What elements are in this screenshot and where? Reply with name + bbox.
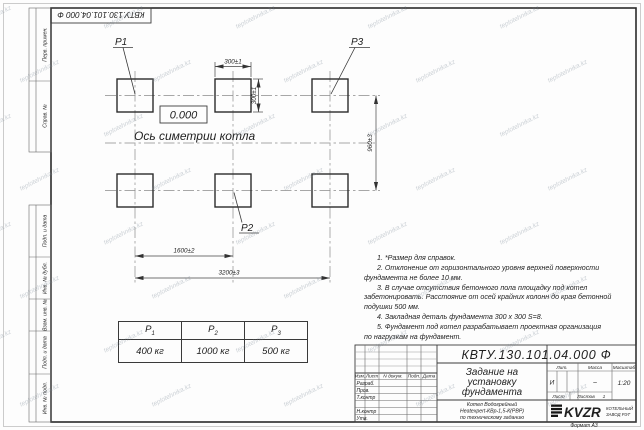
note-line: фундамента не более 10 мм. xyxy=(364,274,638,284)
note-line: 3. В случае отсутствия бетонного пола пл… xyxy=(364,284,638,294)
load-table-header-row: P1 P2 P3 xyxy=(119,322,308,340)
stamp-lit-mass-scale: Лит. Масса Масштаб И – 1:20 Лист Листов … xyxy=(547,363,636,400)
note-line: забетонировать. Расстояние от осей крайн… xyxy=(364,293,638,303)
stamp-header-col: Подп. xyxy=(408,374,421,380)
axis-of-symmetry-label: Ось симетрии котла xyxy=(134,129,255,143)
top-doc-number: КВТУ.130.101.04.000 Ф xyxy=(57,10,145,19)
drawing-canvas: Перв. примен. Справ. № Подп. и дата Инв.… xyxy=(0,0,644,430)
dimension-col-spacing: 1600±2 xyxy=(135,248,233,257)
stamp-product-line: Котел Водогрейный xyxy=(467,401,517,408)
dimension-total-span: 3200±3 xyxy=(135,270,330,279)
note-line: по нагрузкам на фундамент. xyxy=(364,333,638,343)
stamp-header-col: Лист xyxy=(365,374,378,380)
logo-caption-line: ЗАВОД РЭТ xyxy=(606,412,631,417)
dimension-text: 300±1 xyxy=(224,59,241,66)
note-line: 5. Фундамент под котел разрабатывает про… xyxy=(364,323,638,333)
load-table-value: 1000 кг xyxy=(182,340,245,363)
sheet-label: Лист xyxy=(551,394,564,400)
scale-value: 1:20 xyxy=(618,380,631,387)
stamp-title-line: фундамента xyxy=(462,387,523,398)
logo-text: KVZR xyxy=(564,405,601,420)
margin-label: Инв. № дубл. xyxy=(43,262,49,294)
stamp-product-line: по техническому заданию xyxy=(460,415,524,421)
note-line: подушки 500 мм. xyxy=(364,303,638,313)
margin-label: Справ. № xyxy=(43,104,49,128)
stamp-row-label: Т.контр xyxy=(357,395,376,401)
pad-label-text: P2 xyxy=(241,223,254,234)
foundation-plan: P1 P3 P2 0.000 Ось симетрии котла 300±1 xyxy=(105,37,380,283)
margin-label: Инв. № подл. xyxy=(43,382,49,414)
stamp-row-label: Пров. xyxy=(357,388,370,394)
pad-label-text: P3 xyxy=(351,37,364,48)
stamp-product-line: Heatexpert-КВр-1,5-К(РВР) xyxy=(460,409,524,415)
note-line: 4. Закладная деталь фундамента 300 х 300… xyxy=(364,313,638,323)
stamp-header-col: N докум. xyxy=(383,374,402,380)
pad-label-p3: P3 xyxy=(331,37,370,94)
pad-label-p2: P2 xyxy=(234,193,259,235)
stamp-row-label: Н.контр xyxy=(357,409,377,415)
dimension-text: 3200±3 xyxy=(219,270,240,277)
margin-label: Взам. инв. № xyxy=(43,299,49,331)
lit-value: И xyxy=(550,380,555,387)
note-line: 2. Отклонение от горизонтального уровня … xyxy=(364,264,638,274)
dimension-text: 300±1 xyxy=(251,87,258,104)
top-doc-number-box: КВТУ.130.101.04.000 Ф xyxy=(51,8,151,23)
dimension-text: 1600±2 xyxy=(174,248,195,255)
stamp-header-col: Дата xyxy=(422,374,436,380)
stamp-doc-number: КВТУ.130.101.04.000 Ф xyxy=(461,348,611,362)
format-label: Формат А3 xyxy=(570,423,598,429)
margin-label: Перв. примен. xyxy=(43,27,49,61)
logo-caption-line: КОТЕЛЬНЫЙ xyxy=(606,406,634,411)
drawing-sheet: Перв. примен. Справ. № Подп. и дата Инв.… xyxy=(0,0,644,430)
stamp-title: Задание на установку фундамента xyxy=(462,367,523,398)
elevation-mark: 0.000 xyxy=(160,106,207,123)
load-table-header: P2 xyxy=(182,322,245,340)
company-logo: KVZR КОТЕЛЬНЫЙ ЗАВОД РЭТ xyxy=(551,405,634,421)
mass-value: – xyxy=(592,380,597,387)
stamp-row-label: Утв. xyxy=(357,416,368,422)
left-margin-columns: Перв. примен. Справ. № Подп. и дата Инв.… xyxy=(29,8,51,422)
revision-table: Изм. Лист N докум. Подп. Дата Разраб. Пр… xyxy=(355,345,437,422)
lit-label: Лит. xyxy=(555,365,567,371)
stamp-product: Котел Водогрейный Heatexpert-КВр-1,5-К(Р… xyxy=(460,401,524,421)
stamp-header-col: Изм. xyxy=(355,374,365,380)
margin-label: Подп. и дата xyxy=(43,215,49,248)
load-table-value: 500 кг xyxy=(245,340,308,363)
pad-label-text: P1 xyxy=(115,37,127,48)
dimension-text: 960±3 xyxy=(367,134,374,152)
scale-label: Масштаб xyxy=(613,365,636,371)
stamp-row-label: Разраб. xyxy=(357,381,375,387)
title-block: Изм. Лист N докум. Подп. Дата Разраб. Пр… xyxy=(355,345,636,422)
load-table: P1 P2 P3 400 кг 1000 кг 500 кг xyxy=(118,321,308,363)
logo-bars-icon xyxy=(551,405,562,418)
load-table-header: P3 xyxy=(245,322,308,340)
mass-label: Масса xyxy=(588,365,603,371)
load-table-value: 400 кг xyxy=(119,340,182,363)
elevation-value: 0.000 xyxy=(170,110,198,122)
load-table-value-row: 400 кг 1000 кг 500 кг xyxy=(119,340,308,363)
load-table-header: P1 xyxy=(119,322,182,340)
technical-notes: 1. *Размер для справок. 2. Отклонение от… xyxy=(364,254,638,343)
sheets-value: 1 xyxy=(603,394,606,400)
note-line: 1. *Размер для справок. xyxy=(364,254,638,264)
center-lines xyxy=(105,71,380,283)
sheets-label: Листов xyxy=(576,394,595,400)
margin-label: Подп. и дата xyxy=(43,336,49,369)
